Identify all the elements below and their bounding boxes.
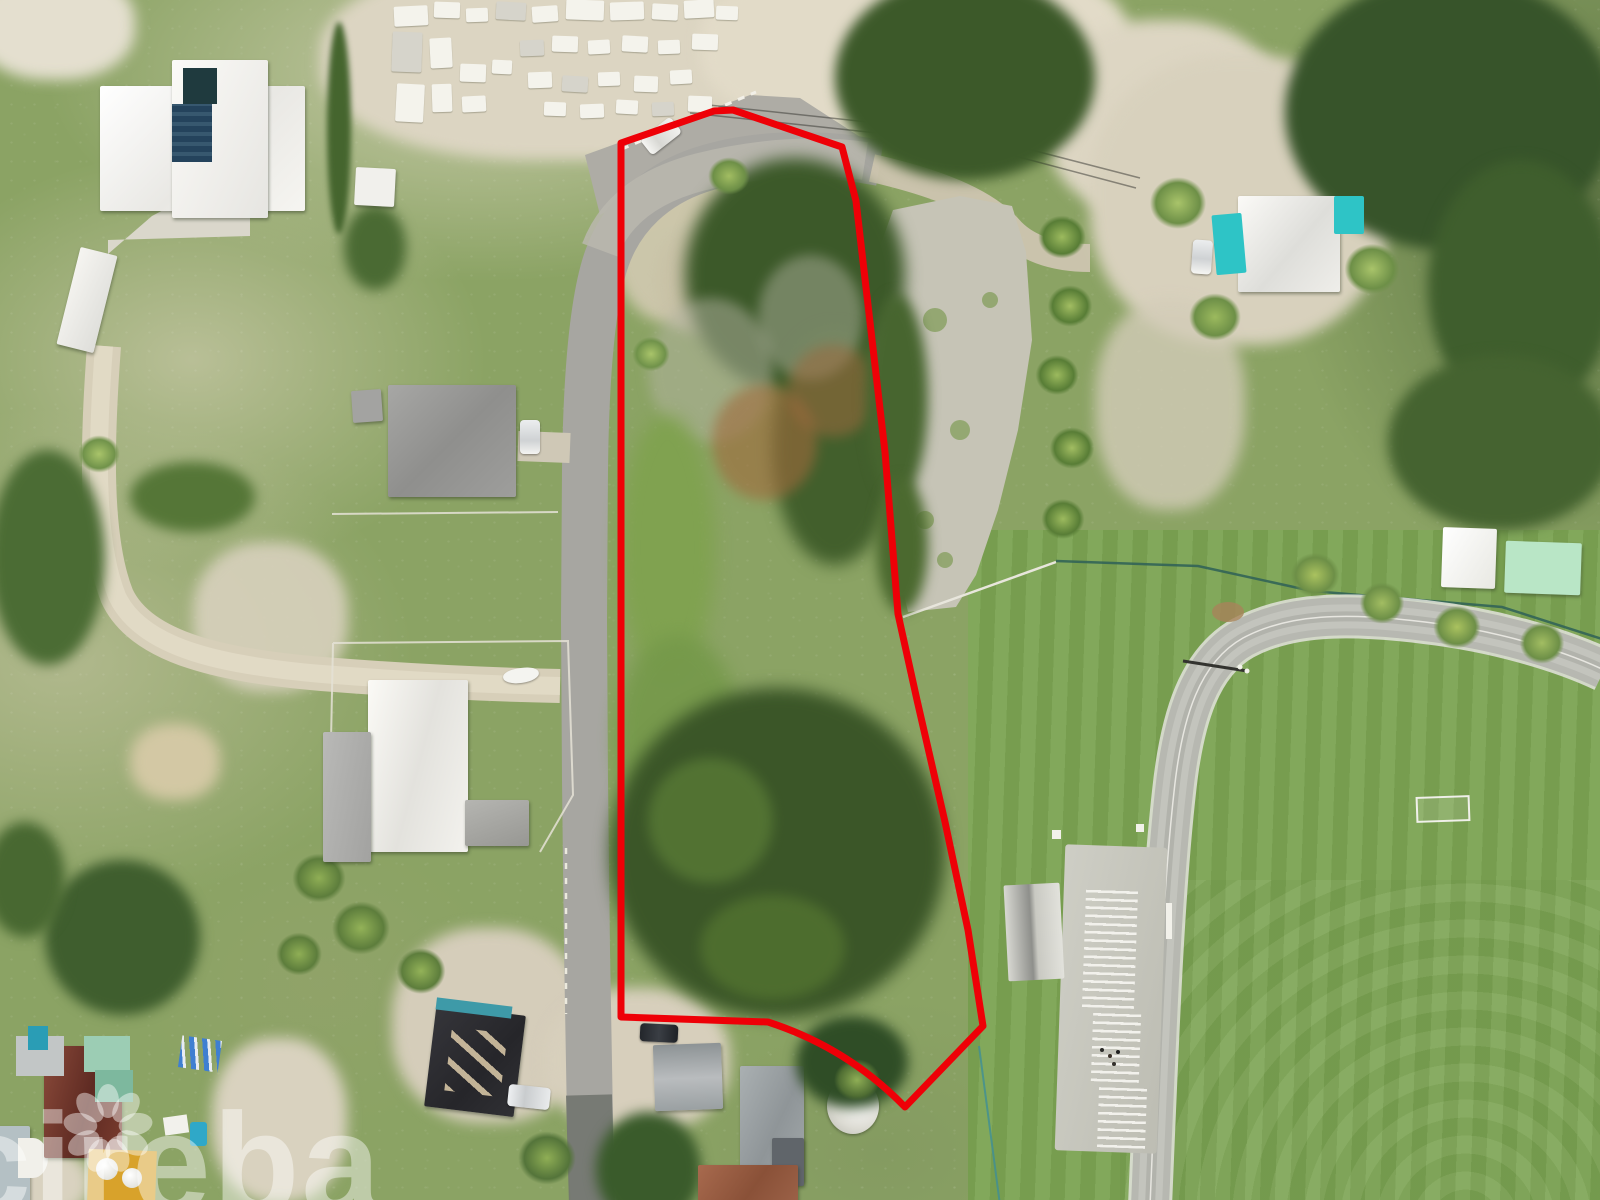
overlay-svg: cireba: [0, 0, 1600, 1200]
property-boundary-outline: [621, 110, 983, 1107]
watermark: cireba: [0, 1084, 382, 1200]
watermark-text: cireba: [0, 1084, 382, 1200]
aerial-photo: cireba: [0, 0, 1600, 1200]
